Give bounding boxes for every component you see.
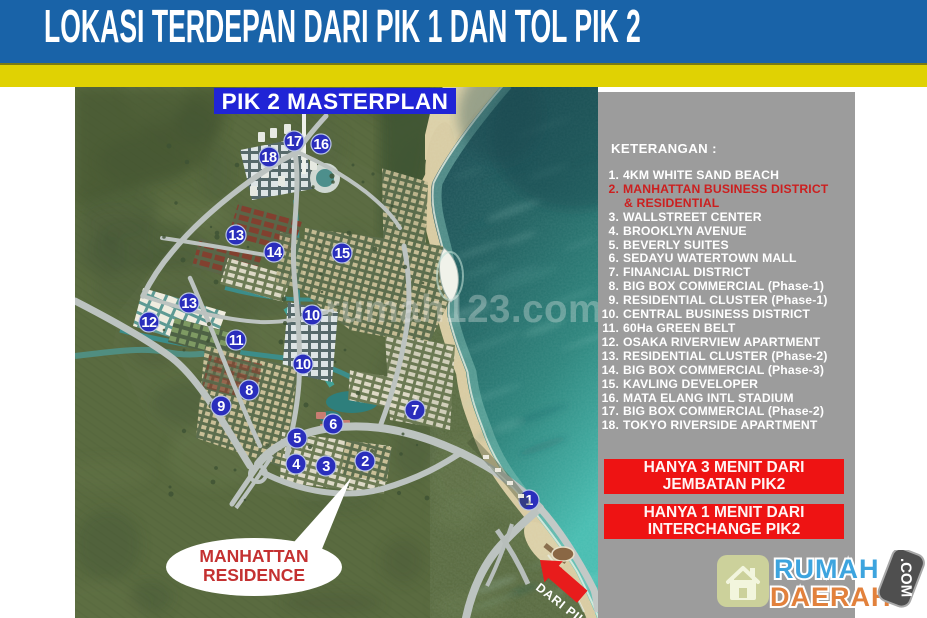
svg-text:8: 8 <box>245 383 253 399</box>
svg-text:6: 6 <box>329 417 337 433</box>
svg-text:DAERAH: DAERAH <box>770 582 892 612</box>
svg-text:10: 10 <box>304 308 320 324</box>
svg-text:5: 5 <box>293 431 301 447</box>
svg-text:PIK 2 MASTERPLAN: PIK 2 MASTERPLAN <box>222 89 449 114</box>
svg-text:18: 18 <box>261 150 277 166</box>
svg-text:11: 11 <box>229 333 244 349</box>
svg-text:9: 9 <box>217 399 225 415</box>
svg-text:4: 4 <box>292 457 300 473</box>
svg-text:15: 15 <box>334 246 350 262</box>
svg-text:MANHATTAN: MANHATTAN <box>199 546 308 566</box>
svg-text:2: 2 <box>361 454 369 470</box>
svg-text:.COM: .COM <box>897 558 915 597</box>
svg-text:RUMAH: RUMAH <box>774 554 880 584</box>
svg-text:3: 3 <box>322 459 330 475</box>
svg-text:17: 17 <box>286 134 302 150</box>
svg-text:12: 12 <box>141 315 157 331</box>
svg-text:rumah123.com: rumah123.com <box>325 288 598 331</box>
svg-text:7: 7 <box>411 403 419 419</box>
svg-text:10: 10 <box>295 357 311 373</box>
svg-text:13: 13 <box>181 296 197 312</box>
svg-text:RESIDENCE: RESIDENCE <box>203 565 305 585</box>
svg-text:13: 13 <box>228 228 244 244</box>
svg-text:14: 14 <box>266 245 282 261</box>
svg-text:16: 16 <box>313 137 329 153</box>
